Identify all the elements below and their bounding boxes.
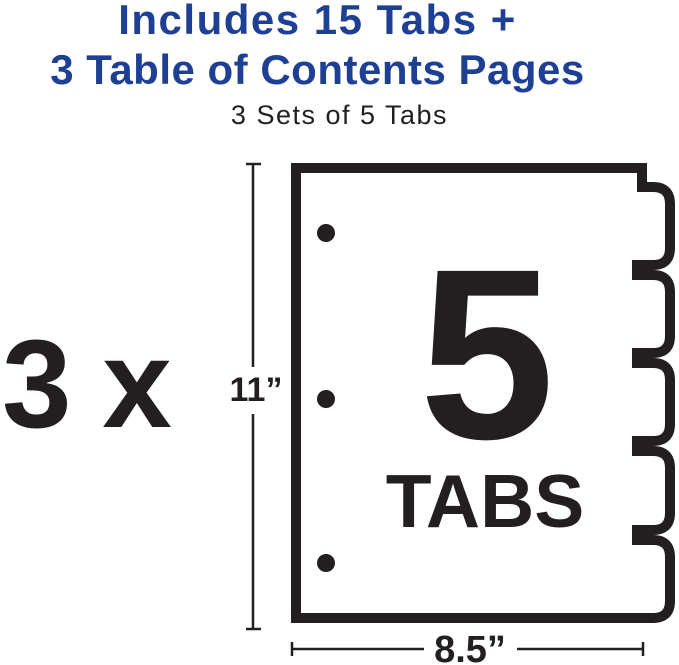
punch-hole-top — [317, 224, 335, 242]
punch-hole-bottom — [317, 554, 335, 572]
tab-count-number: 5 — [419, 219, 554, 490]
multiplier-label: 3 x — [2, 315, 171, 454]
divider-diagram: 11” 8.5” 3 x 5 TABS — [0, 0, 679, 665]
height-dimension-label: 11” — [230, 371, 283, 409]
product-diagram-image: Includes 15 Tabs + 3 Table of Contents P… — [0, 0, 679, 665]
width-dimension-label: 8.5” — [434, 629, 506, 665]
tab-count-caption: TABS — [386, 459, 585, 543]
punch-hole-middle — [317, 390, 335, 408]
